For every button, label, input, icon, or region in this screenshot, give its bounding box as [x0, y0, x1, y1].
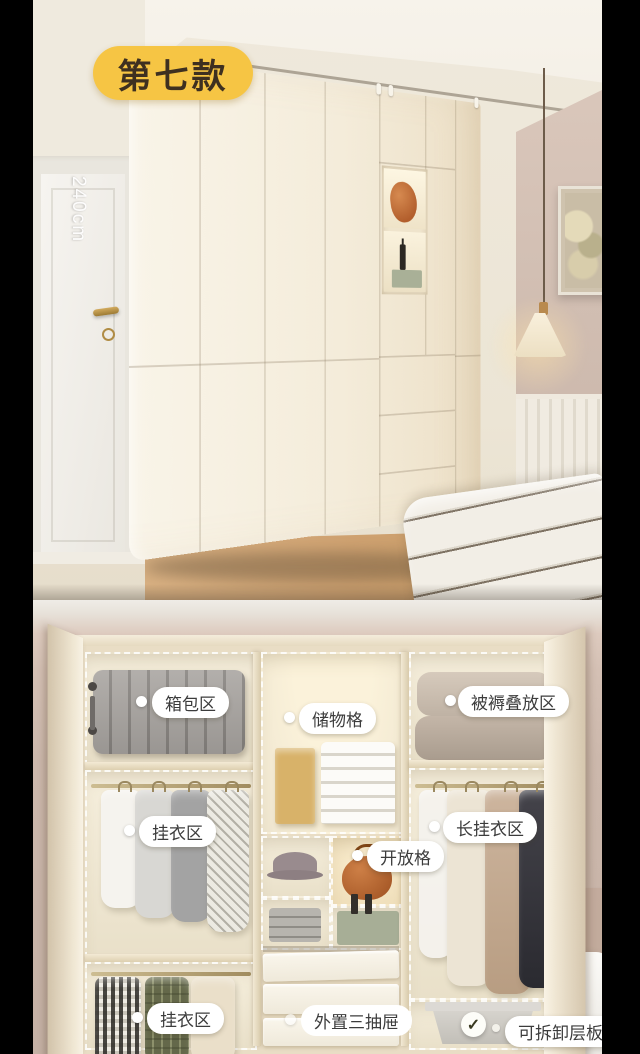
door-seam	[455, 100, 456, 516]
bedroom-photo: 第七款 240cm	[33, 0, 602, 600]
annotation-dot	[445, 695, 456, 706]
bottle	[400, 244, 406, 270]
long-hanging-compartment	[409, 768, 559, 1000]
annotation-dot	[352, 850, 363, 861]
door-seam	[199, 64, 201, 552]
wardrobe-front	[129, 54, 480, 562]
niche-shelf-bottom	[384, 231, 426, 292]
hanger-hook-icon	[433, 781, 447, 792]
plastic-bin-rim	[425, 1002, 541, 1011]
display-niche	[382, 165, 428, 294]
annotation-dot	[284, 712, 295, 723]
hanging-hook	[388, 85, 393, 97]
door-seam	[129, 358, 379, 368]
door-seam	[379, 89, 380, 526]
hanging-hook	[474, 97, 478, 108]
label-luggage-zone: 箱包区	[152, 687, 229, 718]
annotation-dot	[429, 821, 440, 832]
label-open-shelf: 开放格	[367, 841, 444, 872]
hanging-hook	[376, 83, 381, 95]
product-detail-image: 第七款 240cm	[0, 0, 640, 1054]
label-removable-shelf: 可拆卸层板	[505, 1016, 602, 1047]
baseboard	[33, 552, 145, 564]
storage-box	[275, 748, 315, 824]
style-number-badge: 第七款	[93, 46, 253, 100]
drawer-seam	[379, 354, 455, 358]
hanging-rod	[91, 972, 251, 976]
open-cell-towels	[261, 898, 331, 950]
bottle	[365, 894, 372, 914]
shelf-board	[85, 762, 253, 770]
hanger-hook-icon	[225, 781, 239, 792]
label-hanging-zone-mid: 挂衣区	[139, 816, 216, 847]
annotation-dot	[492, 1024, 500, 1032]
hanger-hook-icon	[465, 781, 479, 792]
open-door-left	[48, 624, 83, 1054]
hanger-hook-icon	[188, 781, 202, 792]
hanging-compartment-mid	[85, 770, 257, 958]
door-seam	[455, 355, 480, 357]
vertical-divider	[253, 652, 261, 1046]
check-icon: ✓	[461, 1012, 486, 1037]
open-cell-hat	[261, 836, 331, 898]
folded-gray-towels	[269, 908, 321, 942]
green-box	[392, 270, 422, 288]
storage-compartment	[261, 652, 405, 834]
door-keyhole	[102, 328, 115, 341]
hat-brim	[267, 870, 323, 880]
bottle	[351, 894, 358, 914]
open-cell-box	[331, 906, 405, 950]
wall-art-frame	[558, 186, 602, 295]
label-hanging-zone-bottom: 挂衣区	[147, 1003, 224, 1034]
annotation-dot	[132, 1012, 143, 1023]
shirt-gray	[171, 790, 211, 922]
hanger-hook-icon	[504, 781, 518, 792]
label-storage-grid: 储物格	[299, 703, 376, 734]
folded-towels-stack	[321, 742, 395, 824]
label-bedding-zone: 被褥叠放区	[458, 686, 569, 717]
label-long-hanging-zone: 长挂衣区	[443, 812, 537, 843]
drawer-seam	[379, 465, 455, 475]
bedding-pile	[415, 716, 553, 760]
drawer-1	[263, 950, 400, 982]
door-seam	[264, 73, 266, 543]
annotation-dot	[124, 825, 135, 836]
label-external-drawers: 外置三抽屉	[301, 1005, 412, 1036]
wardrobe-interior-photo: 箱包区 储物格 被褥叠放区 挂衣区 开放格 长挂衣区 挂衣区 外置三抽屉 ✓ 可…	[33, 600, 602, 1054]
shirt-plaid	[207, 790, 249, 932]
niche-shelf-top	[384, 168, 426, 229]
handbag	[388, 181, 418, 224]
hanger-hook-icon	[152, 781, 166, 792]
pendant-cord	[543, 68, 545, 316]
shirt-lightgray	[135, 790, 175, 918]
hanger-hook-icon	[118, 781, 132, 792]
annotation-dot	[136, 696, 147, 707]
photo-edge-shadow	[33, 584, 602, 600]
wall-art	[565, 193, 602, 288]
green-storage-box	[337, 911, 399, 945]
shelf-board	[409, 760, 555, 768]
annotation-dot	[285, 1014, 296, 1025]
shelf-board	[85, 954, 253, 962]
height-dimension-label: 240cm	[67, 176, 89, 243]
door-seam	[324, 82, 325, 535]
drawer-seam	[379, 410, 455, 417]
